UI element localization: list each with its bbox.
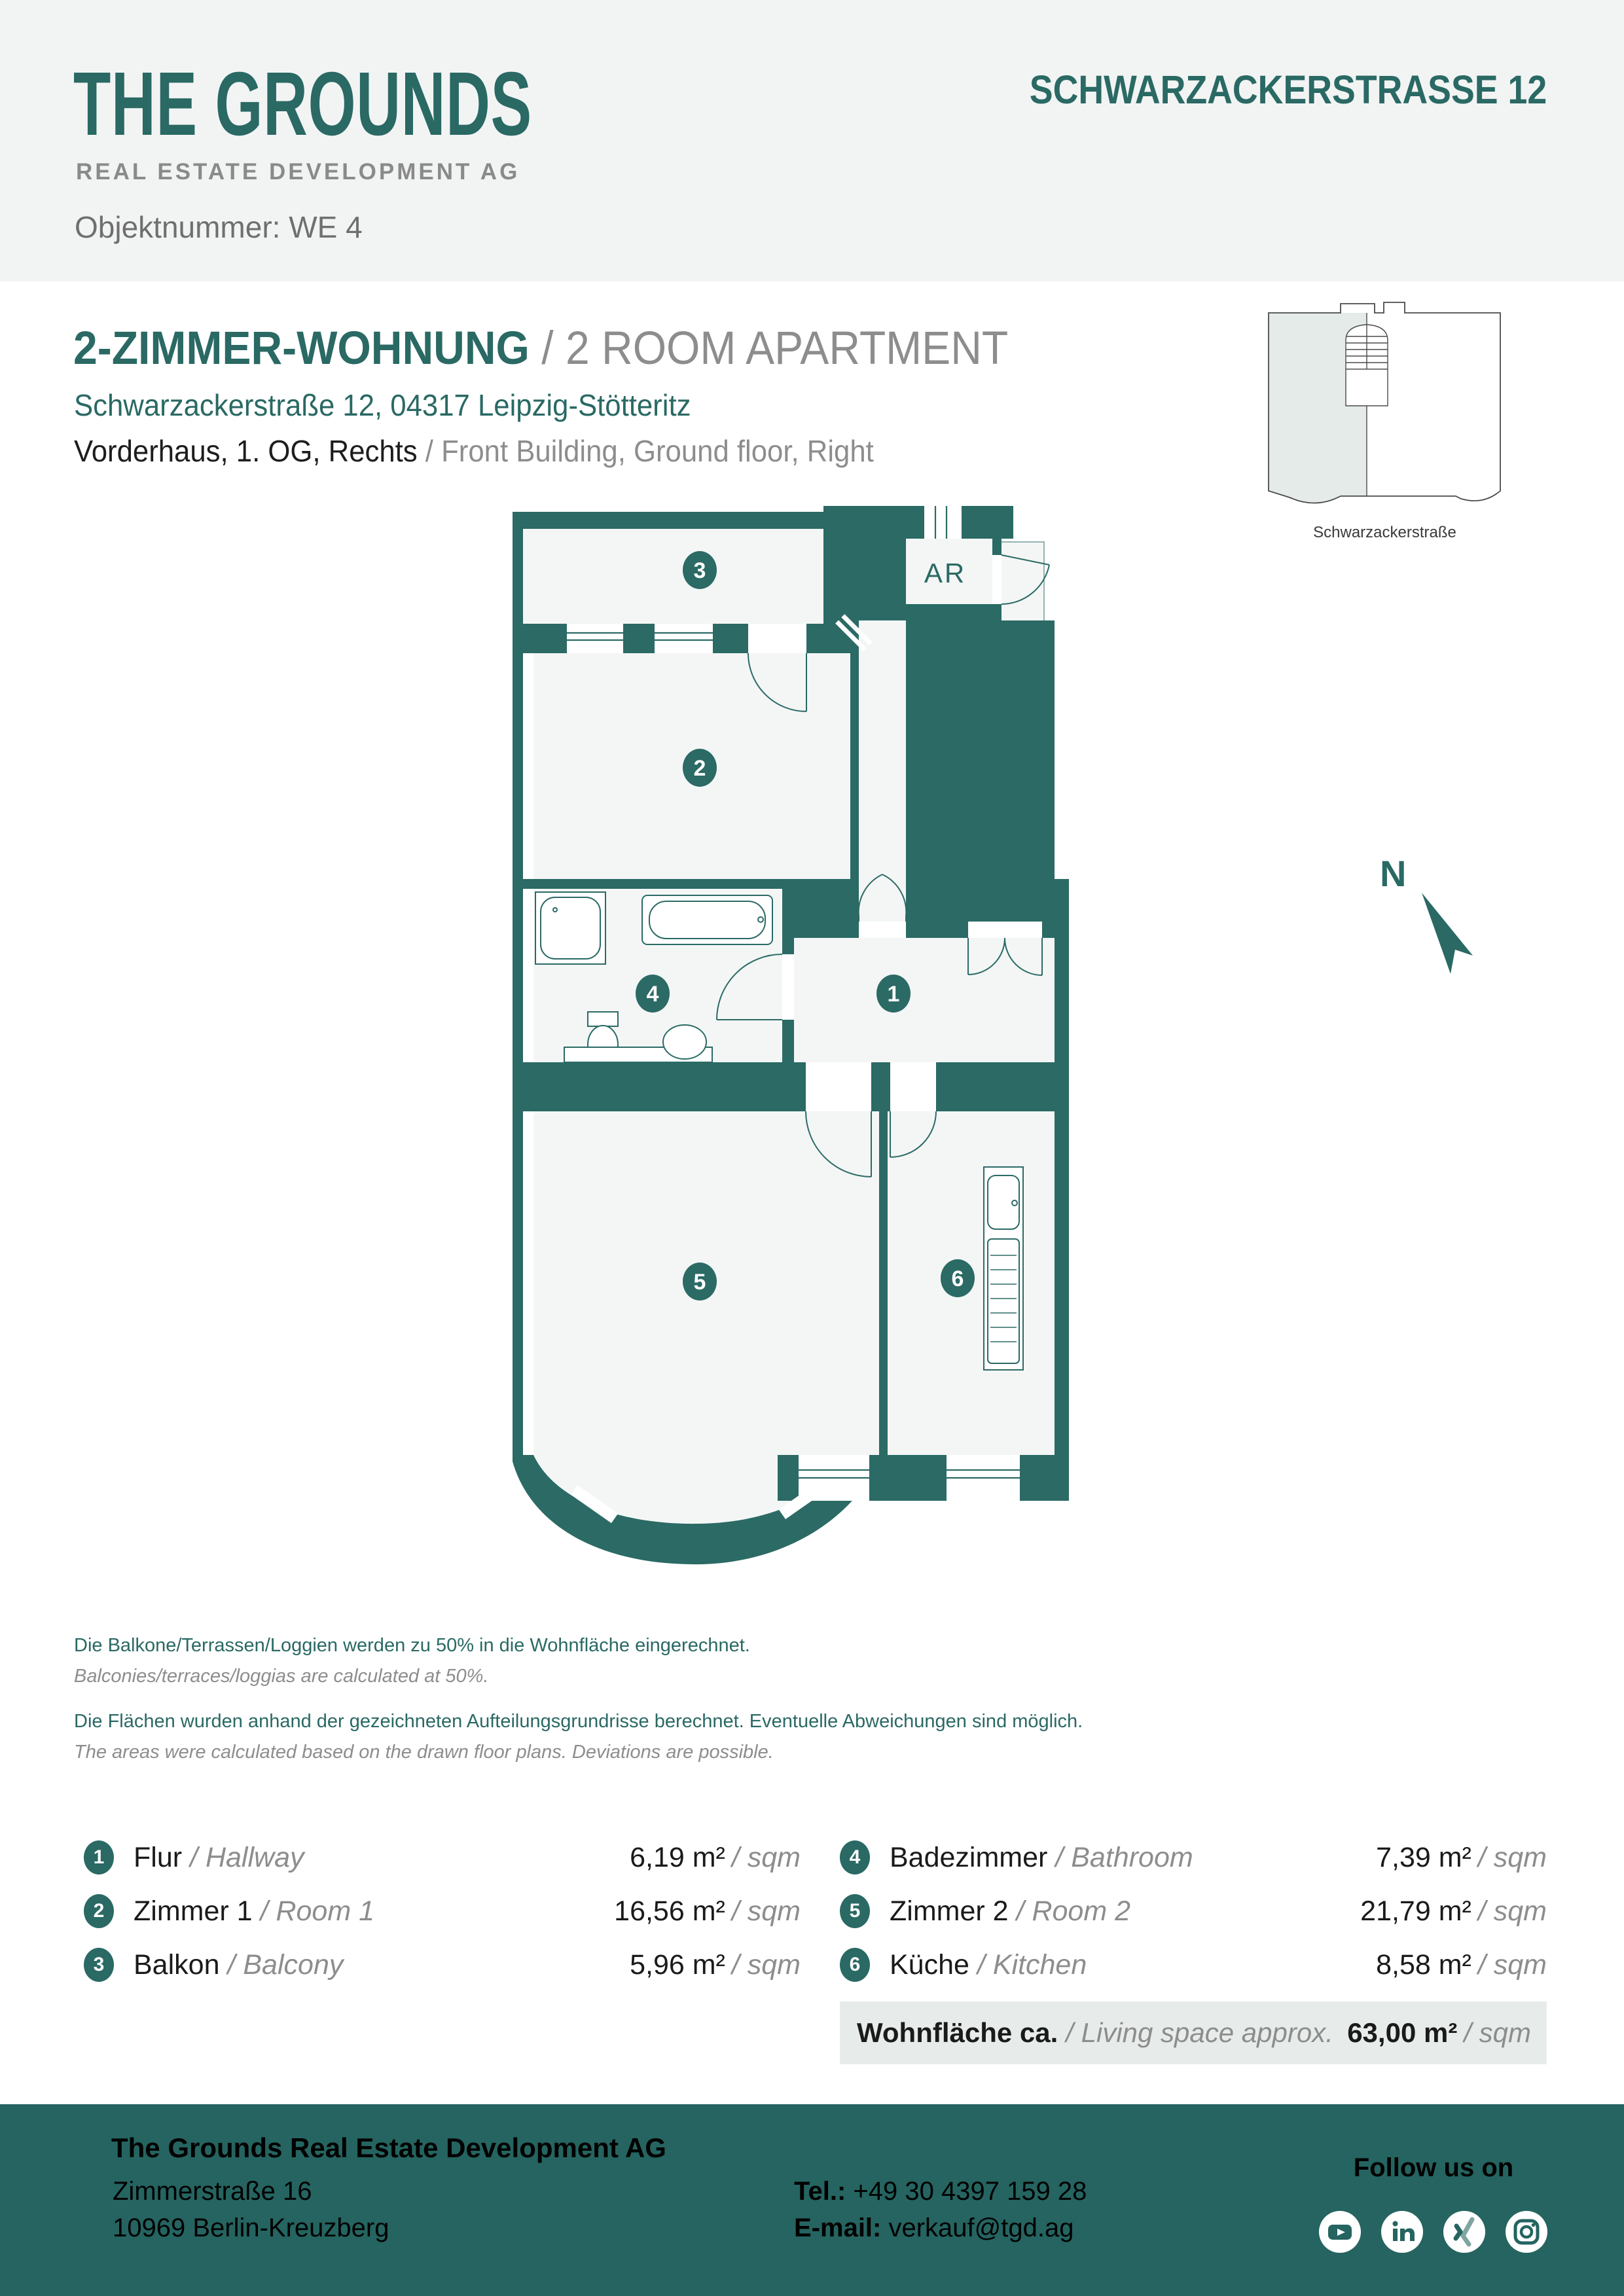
- legend-unit: / sqm: [732, 1949, 801, 1981]
- legend-area: 6,19 m²: [630, 1842, 725, 1874]
- north-arrow-icon: [1414, 889, 1499, 987]
- expose-page: THE GROUNDS REAL ESTATE DEVELOPMENT AG O…: [0, 0, 1624, 2296]
- legend-name-en: / Bathroom: [1055, 1842, 1193, 1874]
- location-de: Vorderhaus, 1. OG, Rechts: [74, 434, 418, 468]
- badge-5: 5: [683, 1263, 717, 1300]
- youtube-icon[interactable]: [1319, 2211, 1361, 2253]
- disclaimer-de-1: Die Balkone/Terrassen/Loggien werden zu …: [74, 1635, 750, 1657]
- disclaimer-en-1: Balconies/terraces/loggias are calculate…: [74, 1666, 489, 1687]
- legend-badge-6: 6: [840, 1948, 870, 1982]
- total-area: 63,00 m²: [1347, 2017, 1457, 2049]
- legend-row-kueche: 6 Küche / Kitchen 8,58 m² / sqm: [840, 1938, 1547, 1992]
- north-label: N: [1380, 852, 1406, 895]
- legend-unit: / sqm: [732, 1842, 801, 1874]
- badge-2: 2: [683, 749, 717, 787]
- linkedin-icon[interactable]: [1381, 2211, 1423, 2253]
- minimap-staircase: [1346, 325, 1388, 406]
- legend-area: 21,79 m²: [1360, 1895, 1471, 1928]
- legend-name-en: / Room 1: [261, 1895, 374, 1928]
- legend-badge-2: 2: [84, 1894, 114, 1928]
- badge-4: 4: [636, 975, 670, 1013]
- footer-email: E-mail: verkauf@tgd.ag: [794, 2214, 1074, 2243]
- legend-name-en: / Room 2: [1017, 1895, 1130, 1928]
- location-line: Vorderhaus, 1. OG, Rechts / Front Buildi…: [74, 433, 874, 469]
- logo-subtitle: REAL ESTATE DEVELOPMENT AG: [76, 159, 520, 185]
- total-label-de: Wohnfläche ca.: [857, 2017, 1058, 2049]
- logo-wordmark: THE GROUNDS: [73, 59, 532, 149]
- legend-row-badezimmer: 4 Badezimmer / Bathroom 7,39 m² / sqm: [840, 1831, 1547, 1884]
- minimap-street-label: Schwarzackerstraße: [1262, 524, 1507, 542]
- toilet: [588, 1012, 618, 1026]
- legend-area: 16,56 m²: [614, 1895, 725, 1928]
- legend-unit: / sqm: [1478, 1895, 1547, 1928]
- total-row: Wohnfläche ca. / Living space approx. 63…: [840, 2001, 1547, 2064]
- legend-badge-5: 5: [840, 1894, 870, 1928]
- total-unit: / sqm: [1464, 2017, 1531, 2049]
- instagram-icon[interactable]: [1506, 2211, 1547, 2253]
- address-line: Schwarzackerstraße 12, 04317 Leipzig-Stö…: [74, 387, 691, 423]
- footer-company: The Grounds Real Estate Development AG: [111, 2132, 666, 2164]
- svg-text:4: 4: [647, 982, 659, 1007]
- disclaimer-de-2: Die Flächen wurden anhand der gezeichnet…: [74, 1711, 1083, 1732]
- footer-email-address[interactable]: verkauf@tgd.ag: [881, 2214, 1074, 2242]
- footer-street: Zimmerstraße 16: [113, 2177, 312, 2206]
- legend-row-balkon: 3 Balkon / Balcony 5,96 m² / sqm: [84, 1938, 801, 1992]
- svg-text:1: 1: [888, 982, 900, 1007]
- svg-text:6: 6: [952, 1266, 964, 1291]
- legend-name-de: Balkon: [134, 1949, 219, 1981]
- badge-6: 6: [941, 1259, 975, 1297]
- legend-badge-1: 1: [84, 1840, 114, 1874]
- legend-name-de: Küche: [890, 1949, 969, 1981]
- legend-name-en: / Hallway: [190, 1842, 304, 1874]
- legend-right-column: 4 Badezimmer / Bathroom 7,39 m² / sqm 5 …: [840, 1831, 1547, 1992]
- apartment-heading: 2-ZIMMER-WOHNUNG / 2 ROOM APARTMENT: [73, 322, 1008, 375]
- legend-area: 8,58 m²: [1376, 1949, 1471, 1981]
- total-label-en: / Living space approx.: [1066, 2017, 1333, 2049]
- floor-plan: 1 2 3 4 5 6 AR: [496, 503, 1072, 1571]
- legend-area: 5,96 m²: [630, 1949, 725, 1981]
- footer-phone: Tel.: +49 30 4397 159 28: [794, 2177, 1087, 2206]
- badge-3: 3: [683, 551, 717, 589]
- legend-name-de: Zimmer 2: [890, 1895, 1009, 1928]
- legend-row-zimmer1: 2 Zimmer 1 / Room 1 16,56 m² / sqm: [84, 1884, 801, 1938]
- follow-us-label: Follow us on: [1319, 2153, 1548, 2183]
- svg-text:2: 2: [694, 756, 706, 781]
- social-icons: [1319, 2211, 1548, 2253]
- footer-email-label: E-mail:: [794, 2214, 881, 2242]
- legend-name-de: Zimmer 1: [134, 1895, 253, 1928]
- legend-unit: / sqm: [732, 1895, 801, 1928]
- stair-corridor: [859, 620, 906, 922]
- disclaimer-en-2: The areas were calculated based on the d…: [74, 1742, 774, 1763]
- kitchen-unit: [984, 1167, 1023, 1370]
- badge-1: 1: [876, 975, 911, 1013]
- footer-phone-label: Tel.:: [794, 2177, 846, 2206]
- footer-phone-number: +49 30 4397 159 28: [846, 2177, 1087, 2206]
- legend-row-flur: 1 Flur / Hallway 6,19 m² / sqm: [84, 1831, 801, 1884]
- legend-badge-3: 3: [84, 1948, 114, 1982]
- property-title: SCHWARZACKERSTRASSE 12: [1030, 67, 1547, 113]
- apartment-heading-en: / 2 ROOM APARTMENT: [530, 323, 1008, 374]
- footer-city: 10969 Berlin-Kreuzberg: [113, 2214, 389, 2243]
- legend-name-en: / Kitchen: [977, 1949, 1087, 1981]
- site-minimap: [1262, 301, 1507, 524]
- xing-icon[interactable]: [1443, 2211, 1485, 2253]
- svg-text:5: 5: [694, 1270, 706, 1295]
- legend-name-de: Flur: [134, 1842, 182, 1874]
- legend-name-en: / Balcony: [227, 1949, 343, 1981]
- legend-name-de: Badezimmer: [890, 1842, 1047, 1874]
- room-flur: [794, 938, 1055, 1062]
- svg-text:3: 3: [694, 558, 706, 583]
- legend-unit: / sqm: [1478, 1949, 1547, 1981]
- ar-room-label: AR: [924, 558, 966, 588]
- apartment-heading-de: 2-ZIMMER-WOHNUNG: [73, 323, 530, 374]
- legend-badge-4: 4: [840, 1840, 870, 1874]
- legend-unit: / sqm: [1478, 1842, 1547, 1874]
- legend-area: 7,39 m²: [1376, 1842, 1471, 1874]
- location-en: / Front Building, Ground floor, Right: [418, 434, 874, 468]
- object-number: Objektnummer: WE 4: [75, 209, 363, 245]
- stair-lobby: [1001, 542, 1044, 620]
- room-balcony: [523, 529, 823, 624]
- sink: [663, 1025, 706, 1059]
- legend-row-zimmer2: 5 Zimmer 2 / Room 2 21,79 m² / sqm: [840, 1884, 1547, 1938]
- legend-left-column: 1 Flur / Hallway 6,19 m² / sqm 2 Zimmer …: [84, 1831, 801, 1992]
